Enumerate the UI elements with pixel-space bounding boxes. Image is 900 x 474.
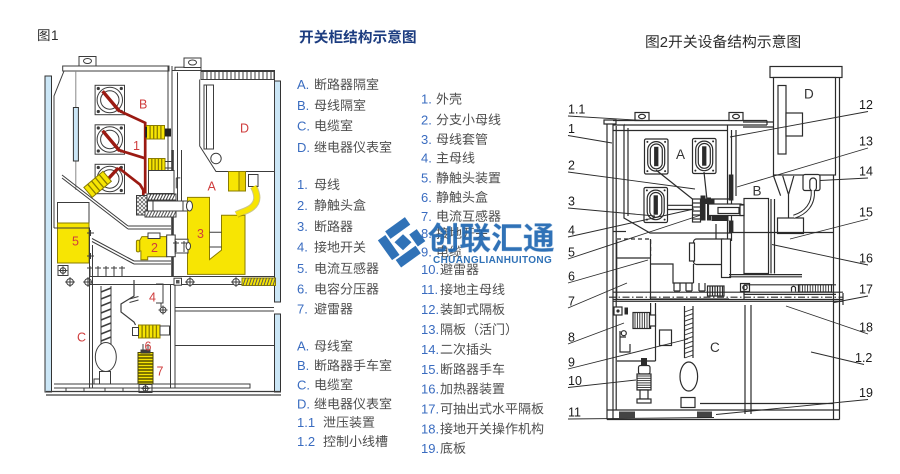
svg-text:2: 2 <box>660 35 668 51</box>
svg-text:15.: 15. <box>421 362 439 377</box>
svg-text:6.: 6. <box>421 190 432 205</box>
svg-text:15: 15 <box>859 205 873 219</box>
svg-text:2.: 2. <box>421 112 432 127</box>
svg-text:1: 1 <box>568 122 575 136</box>
svg-text:17.: 17. <box>421 401 439 416</box>
svg-text:3: 3 <box>197 227 204 241</box>
svg-text:9: 9 <box>568 355 575 369</box>
svg-text:B.: B. <box>297 98 309 113</box>
svg-text:7: 7 <box>157 364 164 378</box>
svg-text:17: 17 <box>859 282 873 296</box>
svg-text:14.: 14. <box>421 342 439 357</box>
svg-text:19: 19 <box>859 386 873 400</box>
svg-text:C.: C. <box>297 118 310 133</box>
svg-text:4.: 4. <box>421 151 432 166</box>
svg-text:16.: 16. <box>421 381 439 396</box>
svg-text:D: D <box>240 121 249 135</box>
svg-text:A: A <box>676 147 685 162</box>
svg-text:5: 5 <box>568 245 575 259</box>
svg-text:18.: 18. <box>421 421 439 436</box>
svg-text:4: 4 <box>149 290 156 304</box>
svg-text:14: 14 <box>859 164 873 178</box>
svg-text:6: 6 <box>145 339 152 353</box>
svg-text:B.: B. <box>297 358 309 373</box>
svg-text:18: 18 <box>859 320 873 334</box>
svg-text:1: 1 <box>133 139 140 153</box>
svg-text:7.: 7. <box>297 302 308 317</box>
svg-text:C: C <box>77 330 86 344</box>
svg-text:12.: 12. <box>421 302 439 317</box>
svg-text:CHUANGLIANHUITONG: CHUANGLIANHUITONG <box>433 255 552 266</box>
svg-text:B: B <box>139 97 147 111</box>
svg-text:4.: 4. <box>297 240 308 255</box>
svg-text:5: 5 <box>72 234 79 248</box>
svg-text:A.: A. <box>297 339 309 354</box>
svg-text:D: D <box>804 87 814 102</box>
svg-text:1.2: 1.2 <box>855 351 872 365</box>
svg-text:C.: C. <box>297 377 310 392</box>
svg-text:1: 1 <box>51 28 59 43</box>
svg-text:5.: 5. <box>297 261 308 276</box>
svg-text:3.: 3. <box>297 219 308 234</box>
svg-text:B: B <box>753 184 762 199</box>
svg-text:10: 10 <box>568 374 582 388</box>
svg-text:D.: D. <box>297 397 310 412</box>
svg-text:6: 6 <box>568 269 575 283</box>
svg-text:11.: 11. <box>421 282 438 297</box>
svg-text:6.: 6. <box>297 282 308 297</box>
svg-text:13: 13 <box>859 134 873 148</box>
svg-text:1.1: 1.1 <box>568 102 585 116</box>
svg-text:2: 2 <box>568 158 575 172</box>
svg-text:C: C <box>710 340 720 355</box>
svg-text:A.: A. <box>297 77 309 92</box>
svg-text:4: 4 <box>568 223 575 237</box>
svg-text:1.2: 1.2 <box>297 434 315 449</box>
svg-text:13.: 13. <box>421 322 439 337</box>
svg-text:3.: 3. <box>421 132 432 147</box>
svg-text:7.: 7. <box>421 209 432 224</box>
svg-text:11: 11 <box>568 405 581 419</box>
svg-text:7: 7 <box>568 294 575 308</box>
svg-text:9.: 9. <box>421 244 432 259</box>
svg-text:D.: D. <box>297 140 310 155</box>
svg-text:3: 3 <box>568 194 575 208</box>
svg-text:2: 2 <box>151 241 158 255</box>
svg-text:A: A <box>208 179 217 193</box>
svg-text:1.: 1. <box>297 177 308 192</box>
svg-text:16: 16 <box>859 251 873 265</box>
svg-text:8: 8 <box>568 330 575 344</box>
svg-text:1.1: 1.1 <box>297 415 315 430</box>
svg-text:19.: 19. <box>421 441 439 456</box>
svg-text:1.: 1. <box>421 92 432 107</box>
svg-text:12: 12 <box>859 98 873 112</box>
svg-text:5.: 5. <box>421 171 432 186</box>
svg-text:2.: 2. <box>297 198 308 213</box>
